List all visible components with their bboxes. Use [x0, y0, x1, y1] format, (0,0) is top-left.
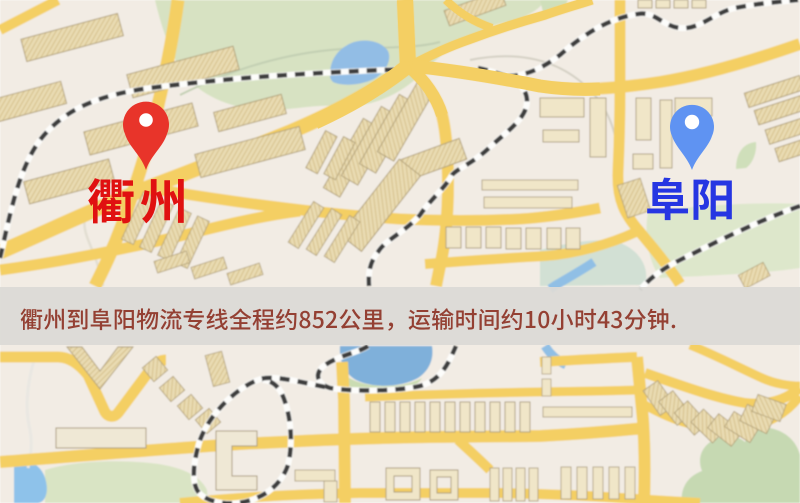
svg-text:阜阳: 阜阳 [645, 164, 735, 229]
svg-text:衢州: 衢州 [87, 163, 193, 233]
svg-text:衢州到阜阳物流专线全程约852公里，运输时间约10小时43分: 衢州到阜阳物流专线全程约852公里，运输时间约10小时43分钟. [20, 301, 677, 335]
